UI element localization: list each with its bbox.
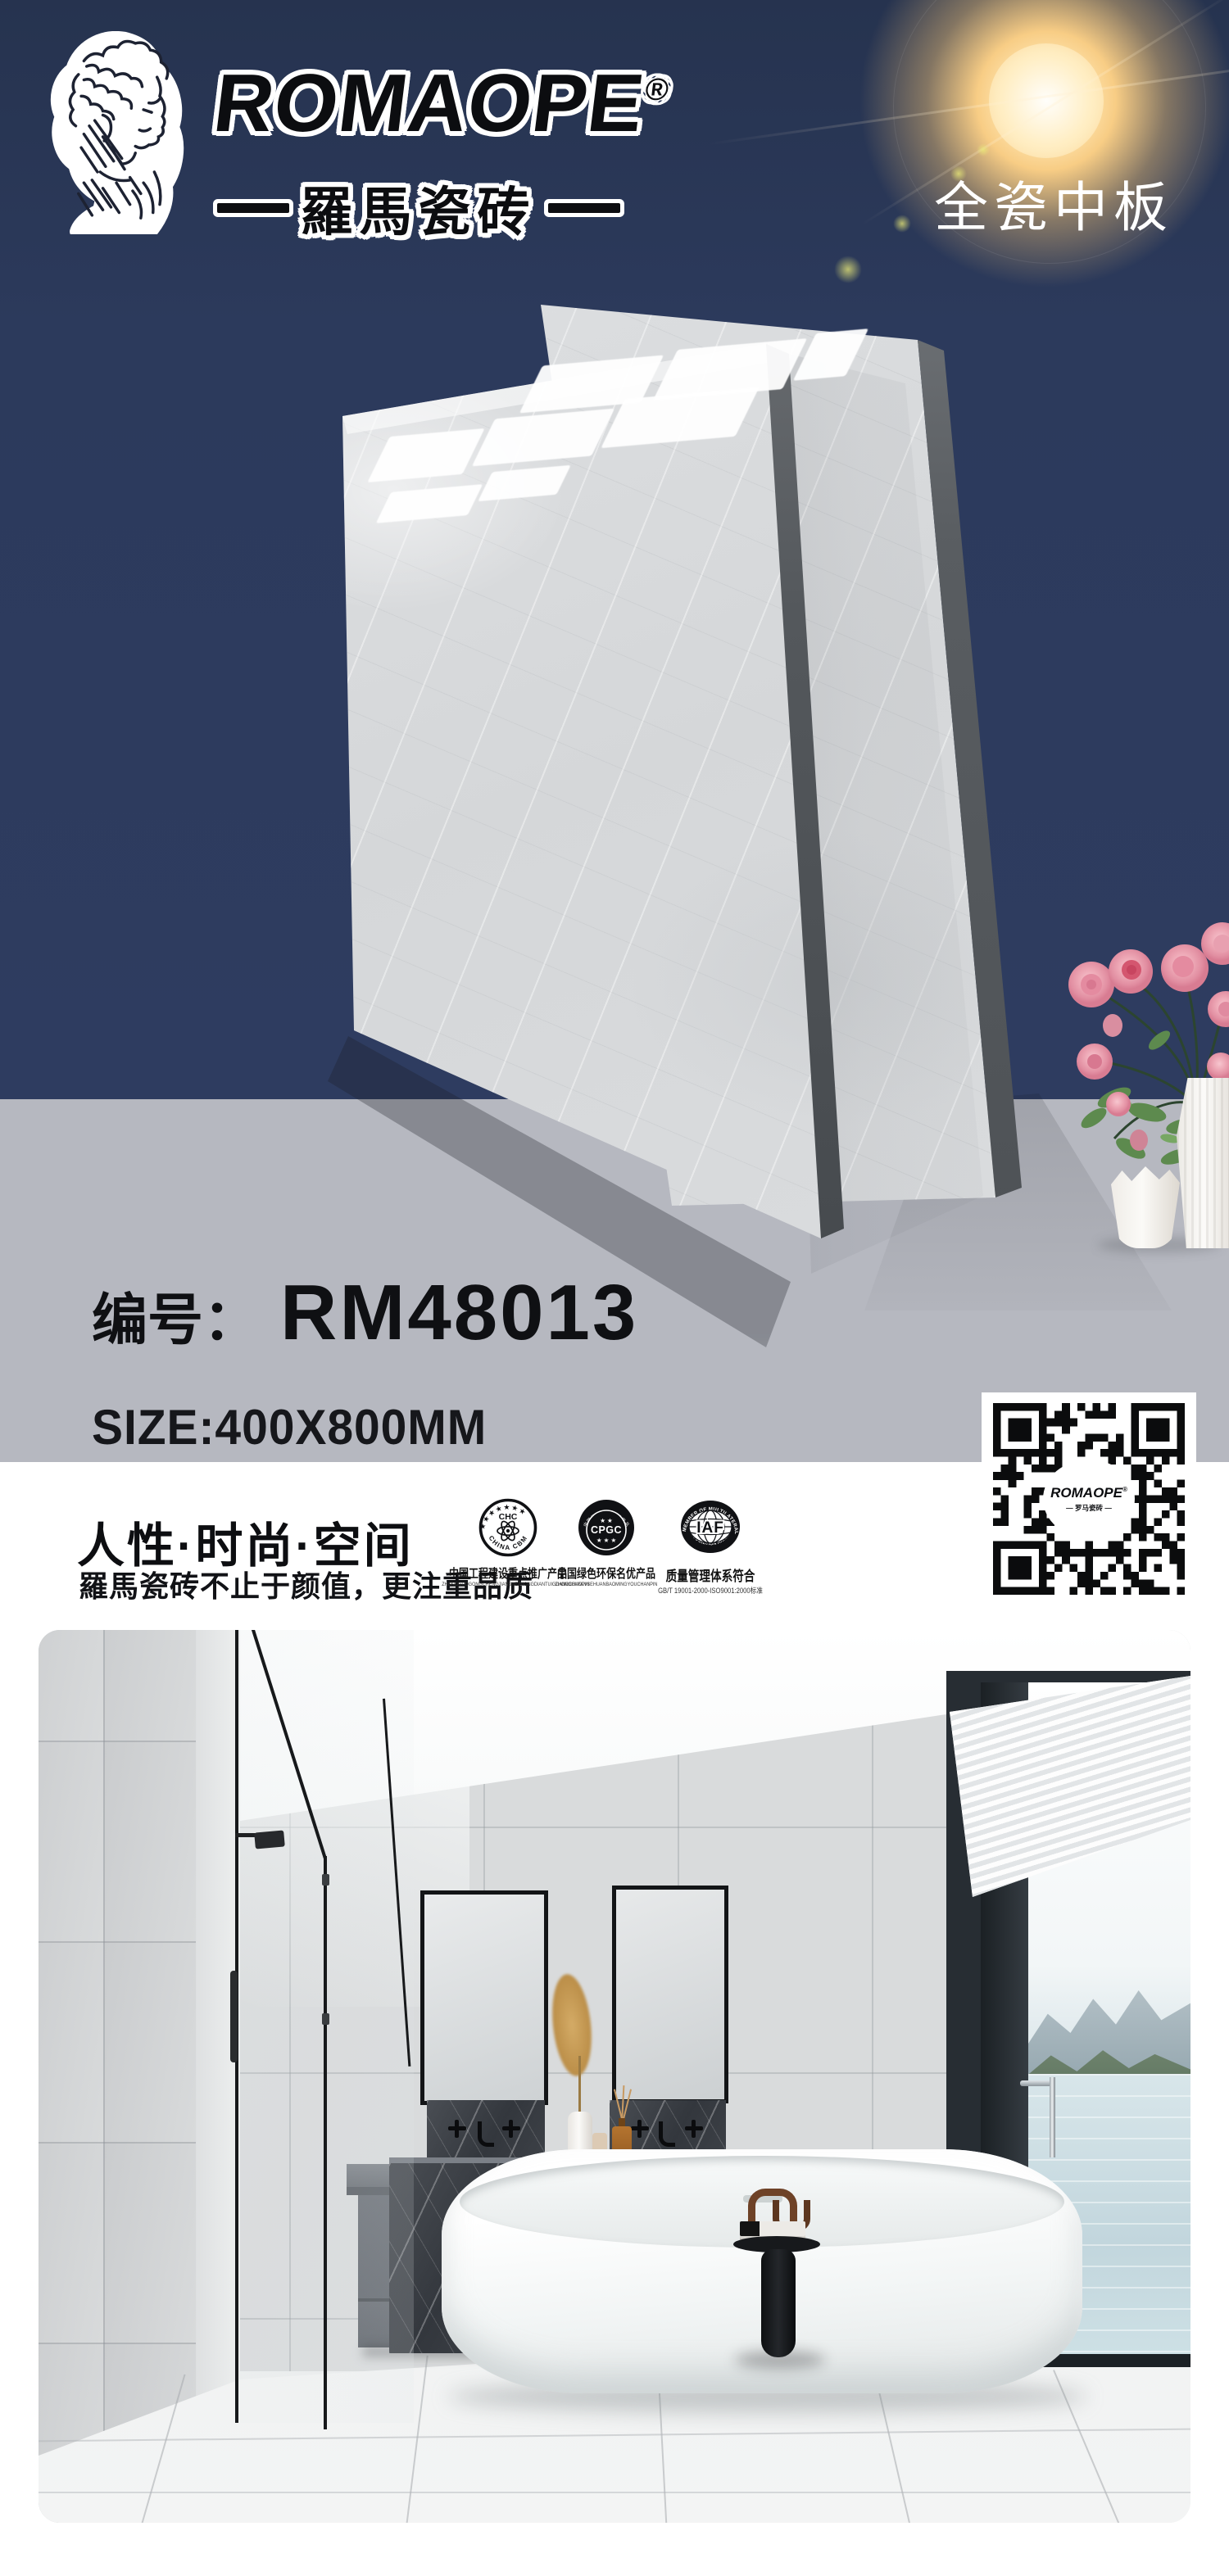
left-tiled-wall <box>39 1630 196 2523</box>
tulip-vase <box>1111 1166 1180 1248</box>
faucet-cross-1 <box>448 2120 466 2138</box>
cert-badge-iaf: MEMBER OF MULTILATERAL RECOGNITION ARRAN… <box>633 1497 788 1596</box>
shower-door-handle <box>230 1971 238 2062</box>
bathroom-scene-photo <box>39 1630 1190 2523</box>
stacked-books <box>740 2221 805 2236</box>
svg-text:IAF: IAF <box>696 1519 724 1537</box>
cpgc-badge-icon: 中国绿色环保名优产品 ★ ★ CPGC ★ ★ ★ <box>576 1497 637 1558</box>
glass-hinge-top <box>322 1874 329 1886</box>
cert-caption-sub: GB/T 19001-2000-ISO9001:2000标准 <box>644 1585 777 1596</box>
vanity-mirror-left <box>420 1890 548 2105</box>
product-code-value: RM48013 <box>280 1268 638 1358</box>
svg-text:★ ★: ★ ★ <box>600 1517 613 1524</box>
faucet-cross-3 <box>631 2120 649 2138</box>
faucet-spout-right <box>659 2121 675 2147</box>
tub-faucet-riser <box>1050 2077 1055 2157</box>
qr-center-logo: ROMAOPE® — 罗马瓷砖 — <box>1043 1460 1135 1538</box>
side-table-base <box>761 2249 796 2357</box>
svg-text:CHC: CHC <box>499 1512 518 1522</box>
cert-caption: 质量管理体系符合 <box>648 1564 773 1585</box>
faucet-spout-left <box>478 2121 494 2147</box>
faucet-cross-4 <box>685 2120 703 2138</box>
qr-code: ROMAOPE® — 罗马瓷砖 — <box>982 1392 1196 1605</box>
vanity-mirror-right <box>612 1886 728 2103</box>
iaf-badge-icon: MEMBER OF MULTILATERAL RECOGNITION ARRAN… <box>679 1497 741 1558</box>
shower-head <box>254 1830 285 1849</box>
shower-door-edge <box>324 1856 327 2429</box>
glass-hinge-bottom <box>322 2013 329 2025</box>
tile-product-poster: ROMAOPE® 羅馬瓷砖 全瓷中板 <box>0 0 1229 2576</box>
faucet-cross-2 <box>502 2120 520 2138</box>
svg-text:CPGC: CPGC <box>591 1524 622 1536</box>
product-size: SIZE:400X800MM <box>92 1399 487 1456</box>
product-code-label: 编号： <box>92 1274 259 1356</box>
product-code-row: 编号： RM48013 <box>92 1268 638 1358</box>
svg-text:★ ★ ★: ★ ★ ★ <box>596 1537 617 1544</box>
flower-vase-arrangement <box>1016 893 1229 1278</box>
floor-grout-h2 <box>39 2492 1190 2493</box>
tall-ribbed-vase <box>1177 1078 1229 1248</box>
